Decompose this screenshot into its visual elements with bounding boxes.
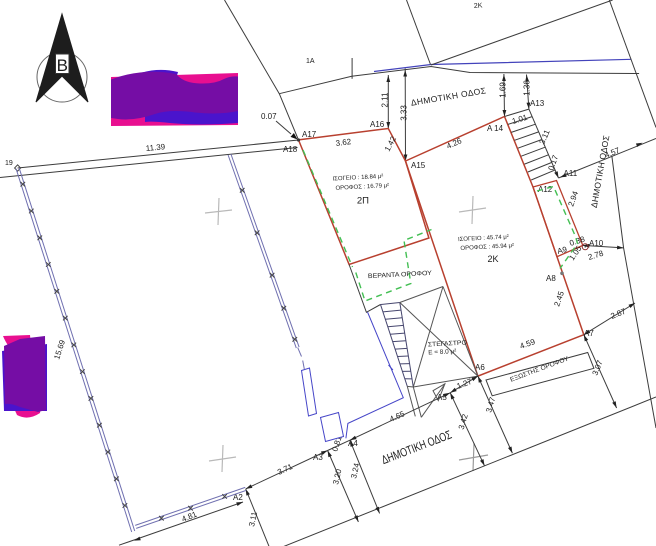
svg-text:A16: A16 [370,120,385,129]
svg-text:2Π: 2Π [357,196,369,207]
svg-text:1A: 1A [306,58,315,65]
svg-text:2Κ: 2Κ [487,254,498,264]
svg-text:1.69: 1.69 [498,82,507,98]
svg-text:A8: A8 [546,274,556,283]
svg-text:A3: A3 [313,453,323,462]
svg-text:1.36: 1.36 [522,80,531,96]
svg-text:Ε = 8.0 μ²: Ε = 8.0 μ² [428,348,456,356]
svg-text:A13: A13 [530,99,545,108]
svg-text:A18: A18 [283,145,298,154]
svg-text:11.39: 11.39 [145,142,166,153]
svg-text:2.11: 2.11 [381,92,390,108]
svg-text:0.07: 0.07 [261,112,277,121]
svg-text:A15: A15 [411,161,426,170]
svg-text:19: 19 [5,160,13,167]
svg-text:B: B [57,56,68,75]
svg-text:3.33: 3.33 [399,105,408,121]
svg-text:A 14: A 14 [487,124,504,133]
svg-text:2Κ: 2Κ [474,2,483,10]
